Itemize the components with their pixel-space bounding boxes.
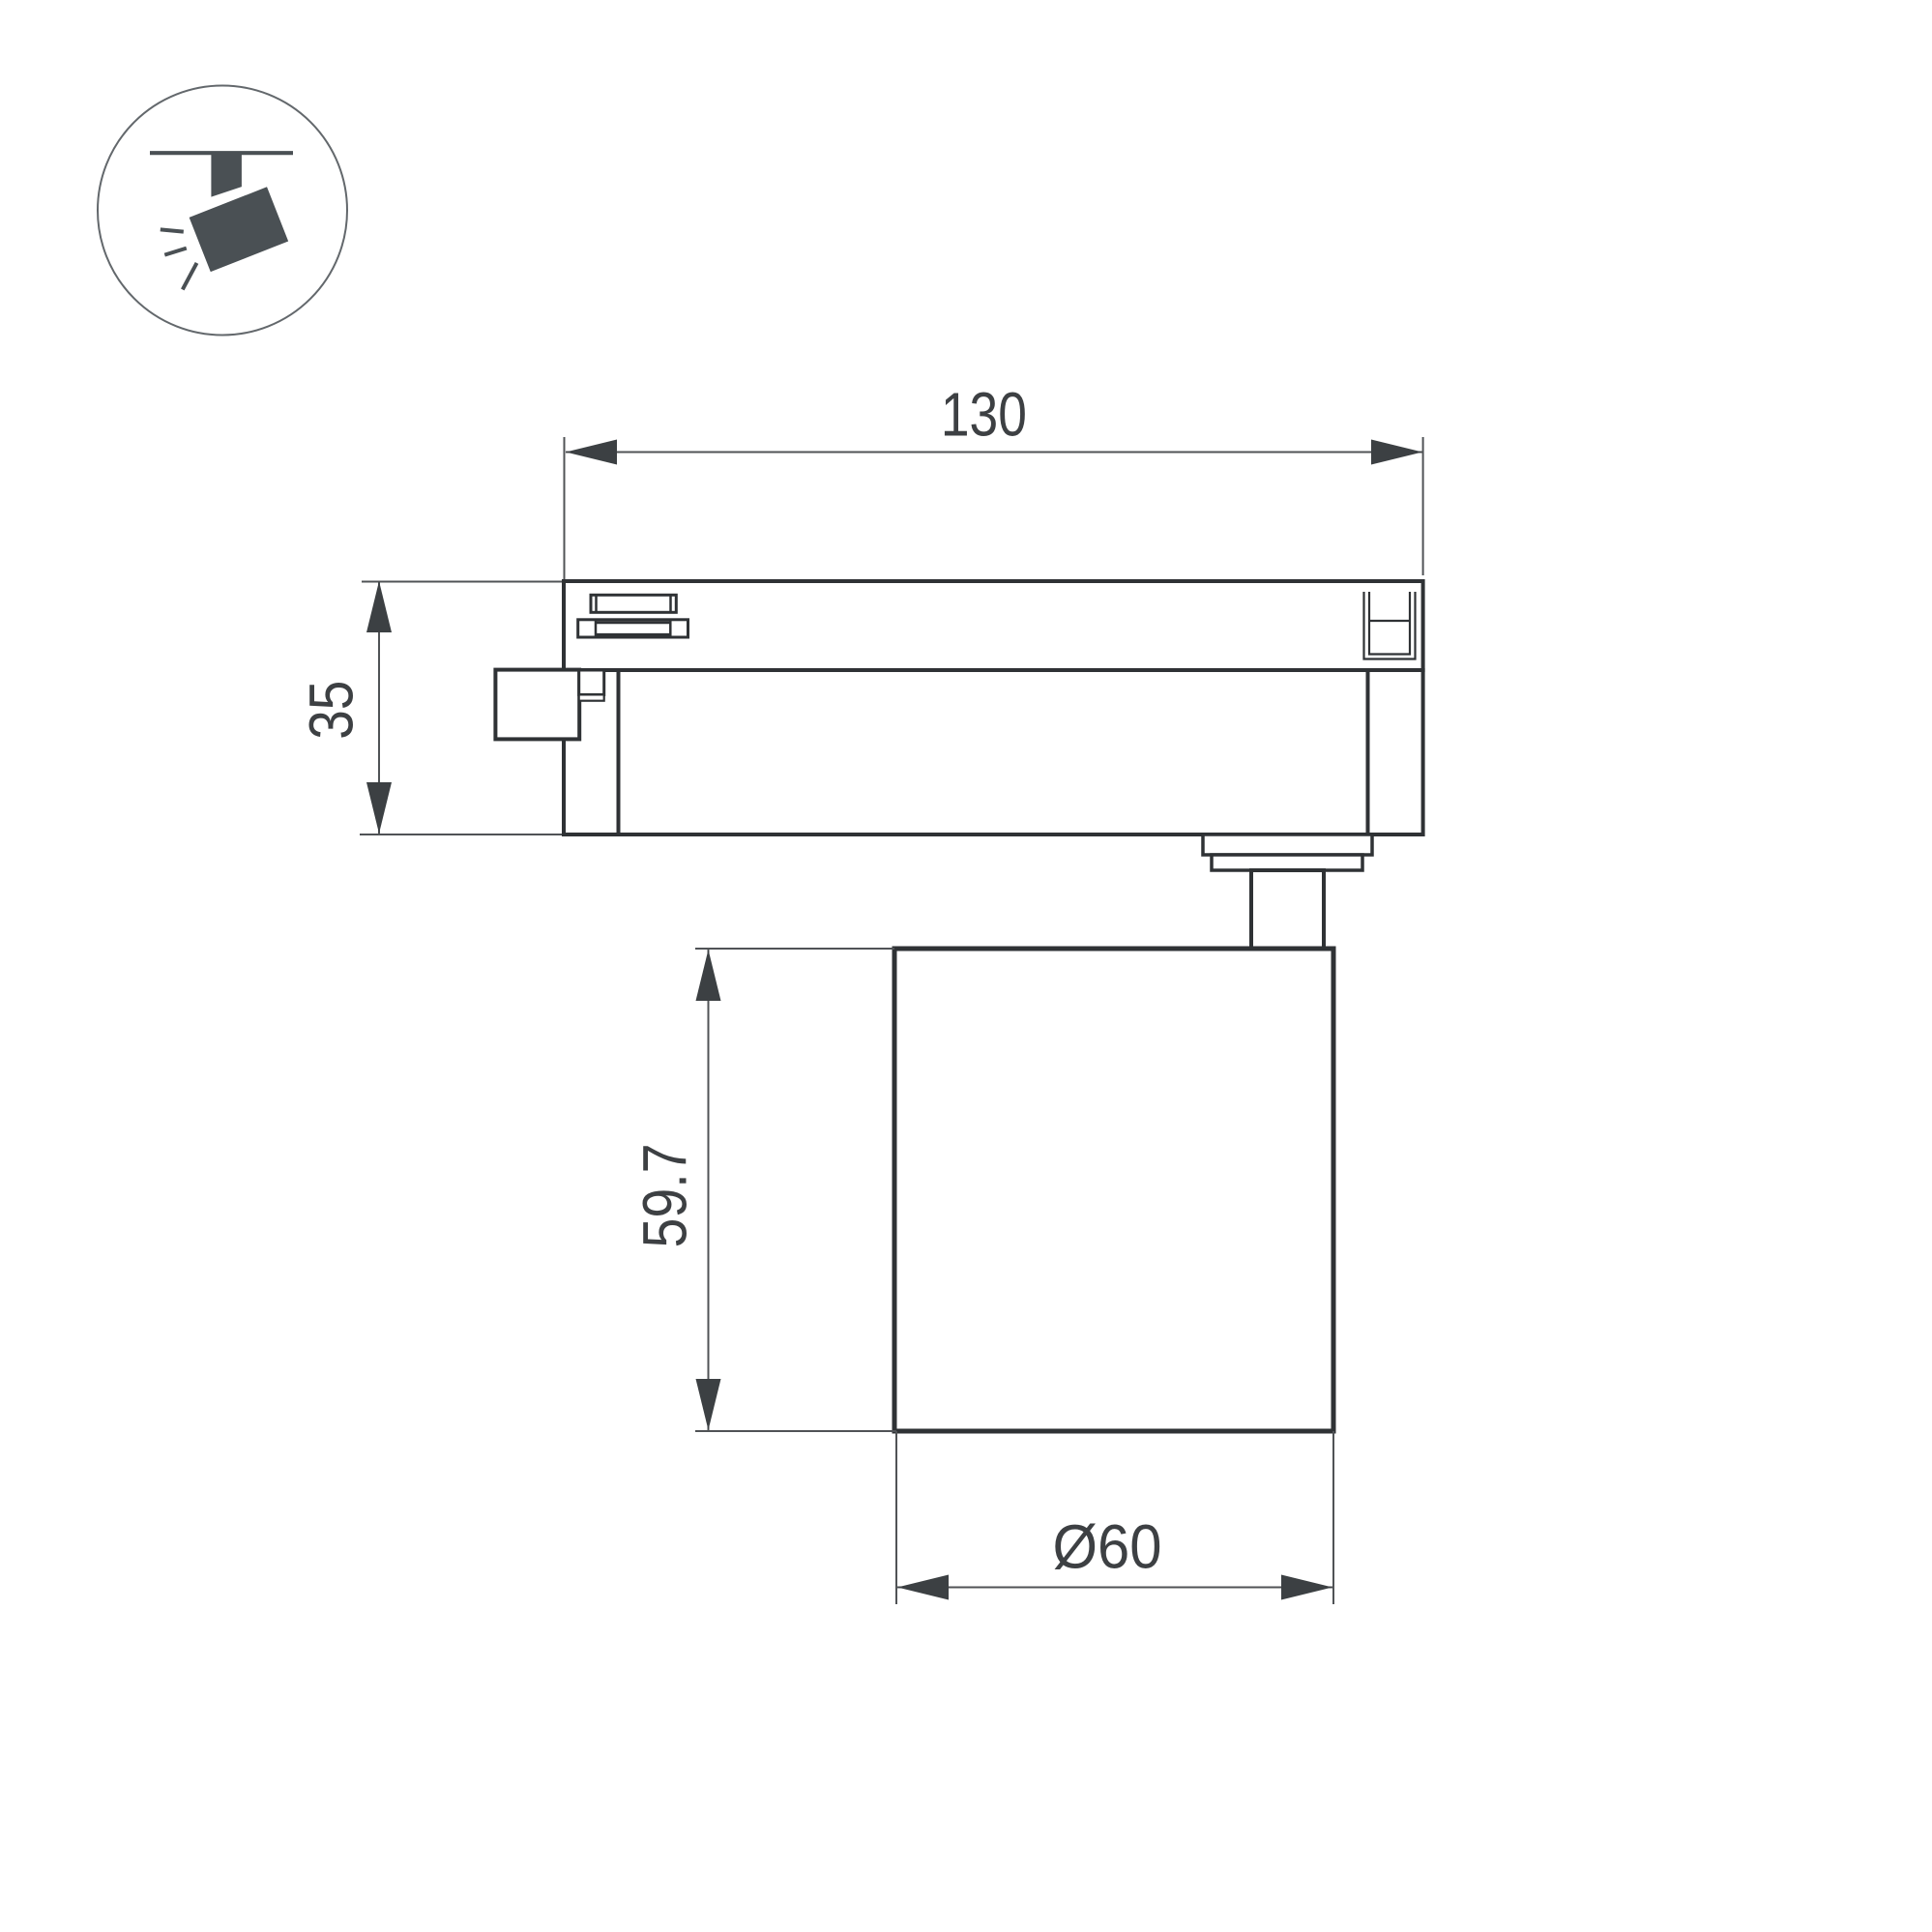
svg-text:130: 130 — [941, 380, 1027, 450]
svg-text:Ø60: Ø60 — [1053, 1512, 1162, 1582]
svg-text:59.7: 59.7 — [630, 1144, 700, 1248]
svg-text:35: 35 — [297, 681, 366, 740]
